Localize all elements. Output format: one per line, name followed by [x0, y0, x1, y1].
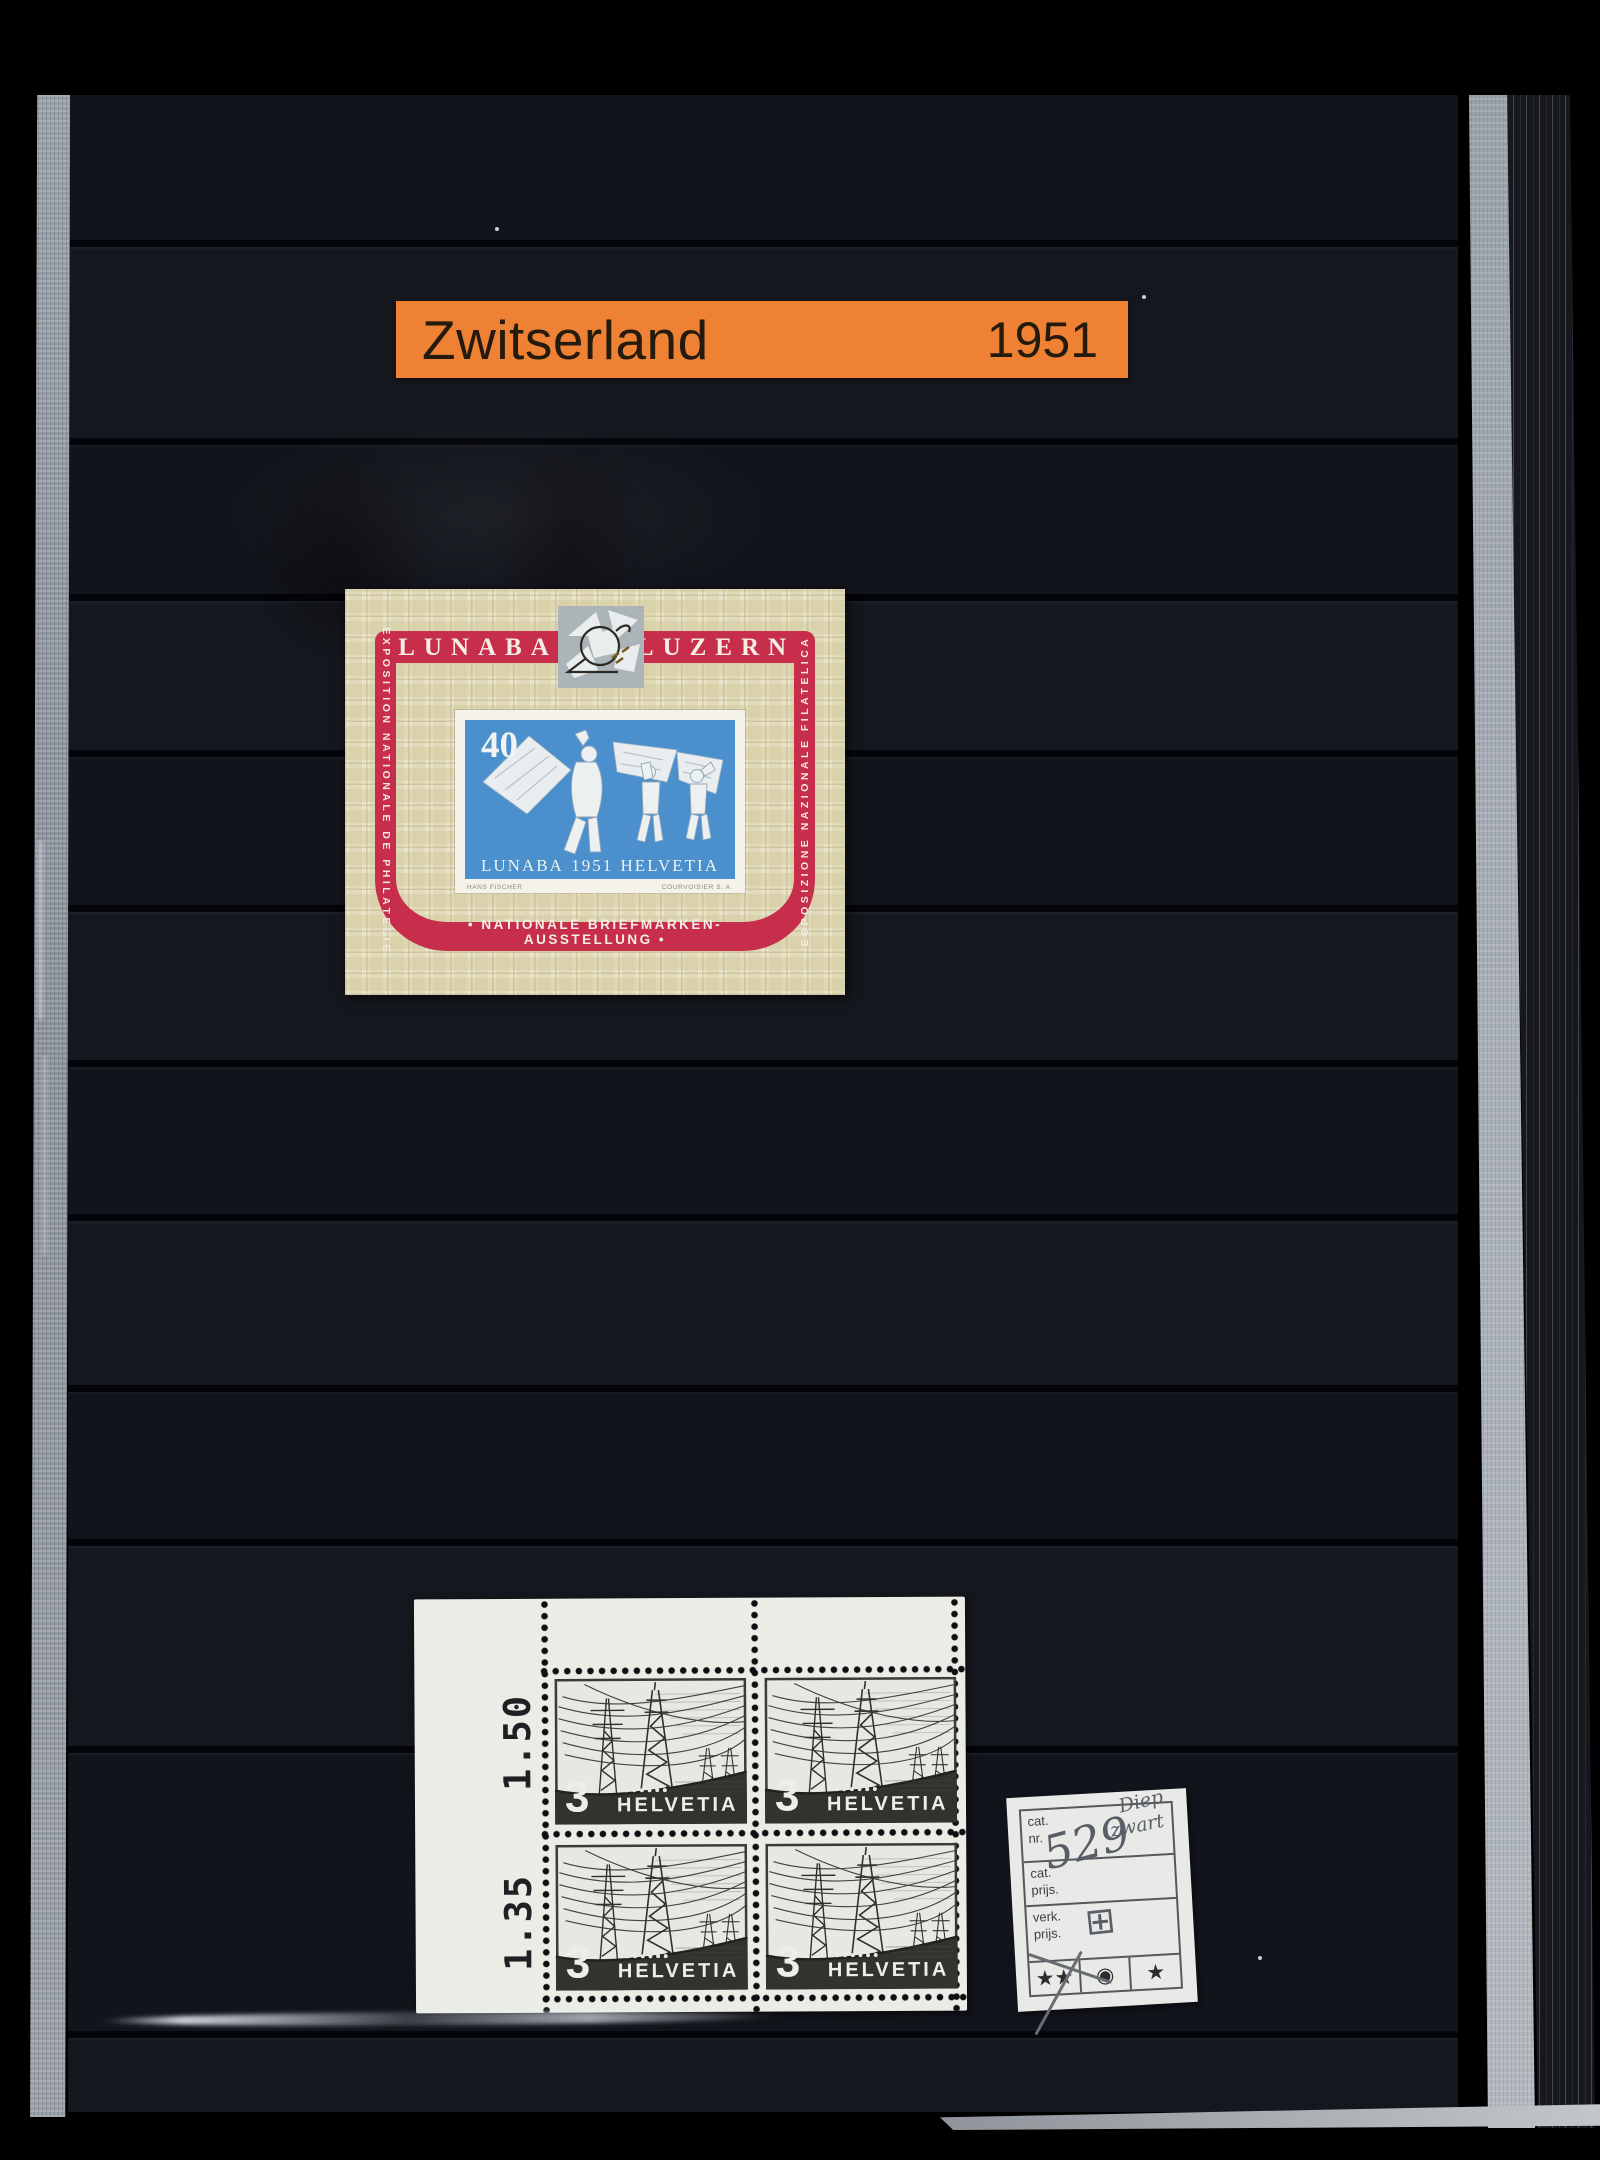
- pylon-stamp: 3 HELVETIA: [764, 1677, 957, 1824]
- plate-value-135: 1.35: [497, 1867, 541, 1977]
- plate-value-150: 1.50: [496, 1687, 540, 1797]
- side-text: EXPOSITION NATIONALE DE PHILATELIE: [380, 627, 392, 954]
- caption-lunaba: LUNABA: [481, 856, 564, 876]
- dealer-card: cat. nr. cat. prijs. verk. prijs. ★★ ◉: [1006, 1788, 1198, 2012]
- designer-credit: HANS FISCHER: [467, 884, 523, 891]
- stamp-denomination: 3: [775, 1771, 800, 1821]
- dust-speck: [1142, 295, 1146, 299]
- country-name: Zwitserland: [422, 308, 709, 372]
- sheet-title-lunaba: LUNABA: [393, 634, 563, 662]
- gloss-streak: [42, 1055, 47, 1255]
- caption-year: 1951: [571, 856, 613, 876]
- sheet-side-text-italian: ESPOSIZIONE NAZIONALE FILATELICA: [794, 669, 815, 913]
- stamp-blue-field: 40 LUNABA 1951 HELVETIA: [465, 720, 735, 879]
- dust-speck: [495, 227, 499, 231]
- stamp-denomination: 3: [566, 1939, 591, 1989]
- pocket-seam: [68, 1214, 1458, 1221]
- year-label: 1951: [987, 311, 1098, 369]
- pocket-seam: [68, 2031, 1458, 2038]
- pocket-strip: [68, 1060, 1458, 1214]
- pocket-strip: [68, 1385, 1458, 1539]
- dotted-line: [828, 1953, 878, 1957]
- stamp-country: HELVETIA: [617, 1794, 739, 1818]
- helvetia-3c-block-of-four: 1.50 1.35 3 HELVETIA 3 HELVETIA 3 HELVET…: [414, 1597, 967, 2014]
- perforation-row: [540, 1991, 967, 2006]
- pocket-seam: [68, 1060, 1458, 1067]
- stamp-country: HELVETIA: [828, 1959, 950, 1983]
- stamp-denomination: 3: [776, 1937, 801, 1987]
- stockbook-photo: Zwitserland 1951 LUNABA LUZERN EXPOSITIO…: [0, 0, 1600, 2160]
- lunaba-souvenir-sheet: LUNABA LUZERN EXPOSITION NATIONALE DE PH…: [345, 589, 845, 995]
- pocket-strip: [68, 1214, 1458, 1385]
- sheet-title-luzern: LUZERN: [631, 634, 801, 662]
- label-verk: verk.: [1032, 1908, 1061, 1925]
- label-prijs: prijs.: [1031, 1881, 1059, 1898]
- pocket-seam: [68, 1385, 1458, 1392]
- dotted-line: [618, 1954, 668, 1958]
- dust-speck: [1258, 1956, 1262, 1960]
- sheet-bottom-banner: • NATIONALE BRIEFMARKEN-AUSSTELLUNG •: [405, 917, 785, 947]
- printer-credit: COURVOISIER S. A.: [662, 884, 733, 891]
- pylon-stamp: 3 HELVETIA: [554, 1678, 747, 1825]
- pocket-seam: [68, 240, 1458, 247]
- stamp-denomination: 3: [565, 1773, 590, 1823]
- pocket-strip: [68, 2031, 1458, 2112]
- pocket-seam: [68, 1539, 1458, 1546]
- lunaba-40c-stamp: 40 LUNABA 1951 HELVETIA HANS FISCHER COU…: [455, 710, 745, 893]
- perforation-column: [748, 1598, 763, 2012]
- perforation-row: [538, 1663, 965, 1678]
- pylon-stamp: 3 HELVETIA: [555, 1844, 748, 1991]
- gloss-sheen: [218, 415, 778, 615]
- stamp-country: HELVETIA: [618, 1960, 740, 1984]
- posthorn-dove-emblem: [558, 606, 644, 688]
- grade-mint-hinged: ★: [1131, 1955, 1181, 1990]
- stamp-country: HELVETIA: [827, 1793, 949, 1817]
- dotted-line: [617, 1788, 667, 1792]
- gloss-streak: [38, 840, 43, 1020]
- sheet-side-text-french: EXPOSITION NATIONALE DE PHILATELIE: [375, 669, 396, 913]
- stamp-denomination: 40: [481, 724, 518, 767]
- caption-helvetia: HELVETIA: [621, 856, 719, 876]
- dotted-line: [827, 1787, 877, 1791]
- pocket-strip: [68, 95, 1458, 240]
- side-text: ESPOSIZIONE NAZIONALE FILATELICA: [799, 636, 811, 947]
- label-prijs: prijs.: [1033, 1925, 1061, 1942]
- perforation-row: [539, 1826, 966, 1841]
- album-country-label: Zwitserland 1951: [396, 301, 1128, 378]
- handwritten-block-of-four-mark: ⊞: [1083, 1900, 1117, 1944]
- book-spine-edge: [30, 95, 70, 2117]
- pylon-stamp: 3 HELVETIA: [765, 1843, 958, 1990]
- stamp-caption-row: LUNABA 1951 HELVETIA: [481, 856, 719, 876]
